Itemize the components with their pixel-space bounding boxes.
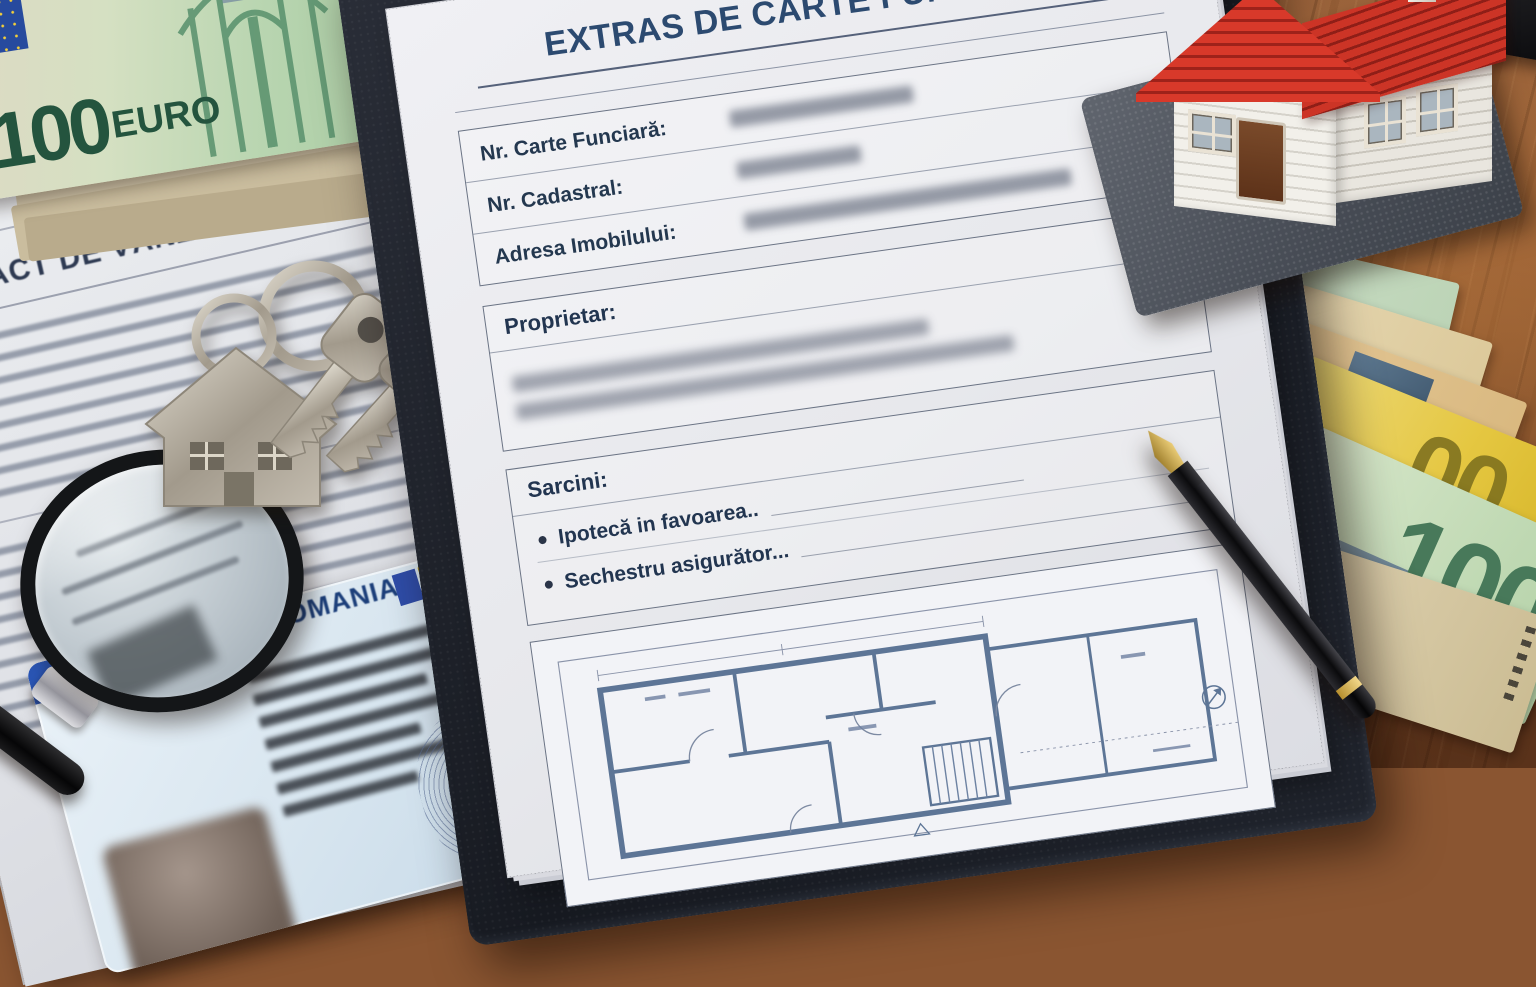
- redacted-value: [736, 145, 862, 179]
- model-house-zone: [1078, 0, 1536, 280]
- house-window: [1188, 109, 1236, 157]
- house-window: [1364, 95, 1406, 149]
- north-arrow-icon: [913, 823, 929, 836]
- bullet-icon: [538, 536, 547, 545]
- house-window: [1416, 83, 1458, 137]
- house-chimney: [1408, 0, 1436, 2]
- eu-flag-patch: [0, 0, 29, 58]
- banknote-denomination: 100EURO: [0, 68, 226, 181]
- banknote-serial-marks: [1502, 626, 1536, 705]
- bullet-icon: [544, 580, 553, 589]
- id-card-photo: [101, 805, 302, 975]
- redacted-value: [729, 85, 915, 128]
- house-door: [1236, 117, 1286, 205]
